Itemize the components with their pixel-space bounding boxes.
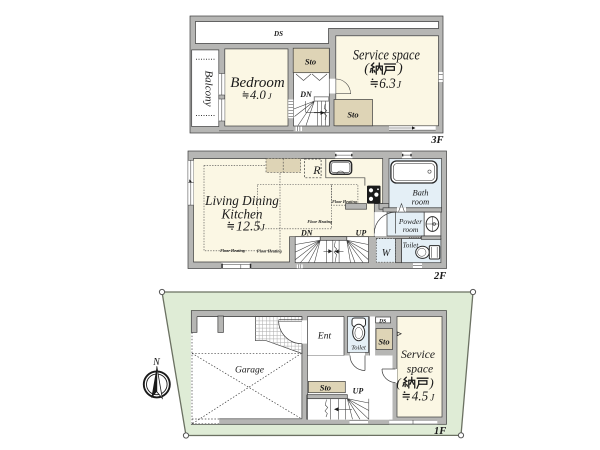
svg-text:DS: DS xyxy=(273,30,283,38)
svg-text:Floor Heating: Floor Heating xyxy=(332,199,357,204)
svg-text:DS: DS xyxy=(378,319,386,325)
svg-text:Sto: Sto xyxy=(347,110,358,120)
svg-text:6.3: 6.3 xyxy=(379,76,396,92)
svg-text:UP: UP xyxy=(356,228,367,237)
svg-text:room: room xyxy=(412,197,430,207)
svg-text:Service space: Service space xyxy=(353,47,420,63)
svg-text:Sto: Sto xyxy=(305,57,316,67)
svg-text:1F: 1F xyxy=(434,426,446,437)
svg-text:room: room xyxy=(403,225,419,234)
svg-text:Service: Service xyxy=(401,348,435,361)
svg-text:R: R xyxy=(312,163,321,177)
svg-text:3F: 3F xyxy=(430,135,443,146)
svg-text:Ent: Ent xyxy=(317,332,332,342)
svg-text:space: space xyxy=(407,363,433,376)
svg-text:J: J xyxy=(397,80,402,91)
svg-text:): ) xyxy=(397,62,403,77)
svg-text:12.5: 12.5 xyxy=(236,219,261,234)
svg-text:Floor Heating: Floor Heating xyxy=(220,248,245,253)
svg-text:Balcony: Balcony xyxy=(203,70,215,106)
svg-text:(: ( xyxy=(396,375,401,390)
svg-text:2F: 2F xyxy=(433,271,446,282)
svg-text:Floor Heating: Floor Heating xyxy=(257,249,282,254)
svg-text:DN: DN xyxy=(299,90,313,99)
svg-text:DN: DN xyxy=(300,228,314,237)
svg-text:Floor Heating: Floor Heating xyxy=(307,219,332,224)
svg-text:Sto: Sto xyxy=(378,337,389,347)
svg-text:4.0: 4.0 xyxy=(250,88,266,102)
svg-text:4.5: 4.5 xyxy=(412,389,429,404)
svg-text:): ) xyxy=(428,375,433,390)
svg-text:UP: UP xyxy=(353,387,364,396)
svg-text:Toilet: Toilet xyxy=(351,345,366,352)
svg-text:Sto: Sto xyxy=(320,382,331,392)
svg-text:Garage: Garage xyxy=(235,366,264,376)
